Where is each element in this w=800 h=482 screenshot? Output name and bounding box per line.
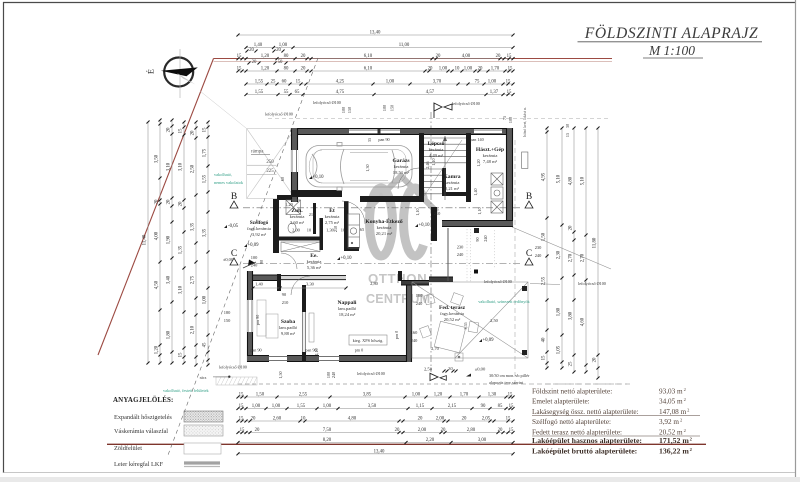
svg-text:30/30 cm mon. vb pillér: 30/30 cm mon. vb pillér <box>489 373 530 378</box>
svg-text:20: 20 <box>154 199 159 204</box>
svg-text:kerámia: kerámia <box>377 225 392 230</box>
svg-text:40: 40 <box>541 337 546 342</box>
svg-text:Konyha-Étkező: Konyha-Étkező <box>365 217 402 225</box>
svg-text:2: 2 <box>684 387 686 392</box>
svg-text:Nappali: Nappali <box>338 300 357 306</box>
svg-text:Garázs: Garázs <box>392 158 410 164</box>
svg-text:210: 210 <box>333 226 338 232</box>
svg-text:80: 80 <box>284 67 289 72</box>
svg-text:2,80: 2,80 <box>467 428 476 433</box>
svg-text:1,00: 1,00 <box>439 67 448 72</box>
svg-text:6,10: 6,10 <box>364 67 373 72</box>
svg-text:15: 15 <box>506 80 511 85</box>
svg-text:11,80: 11,80 <box>592 237 597 248</box>
svg-text:20: 20 <box>498 428 503 433</box>
svg-text:15: 15 <box>541 355 546 360</box>
svg-text:100: 100 <box>251 255 258 260</box>
svg-text:1,55: 1,55 <box>202 174 207 183</box>
svg-text:+0,10: +0,10 <box>418 223 430 228</box>
svg-text:2,55: 2,55 <box>541 276 546 285</box>
svg-text:15: 15 <box>237 67 242 72</box>
svg-text:20: 20 <box>255 428 260 433</box>
svg-text:lefolyócső Ø100: lefolyócső Ø100 <box>452 101 480 106</box>
svg-text:2,30: 2,30 <box>556 250 561 259</box>
svg-text:Ét: Ét <box>329 206 335 214</box>
svg-text:2,10: 2,10 <box>190 325 195 334</box>
svg-text:Földszint nettó alapterülete:: Földszint nettó alapterülete: <box>532 388 612 396</box>
svg-text:240: 240 <box>416 301 423 306</box>
svg-text:15: 15 <box>178 128 183 133</box>
svg-text:240: 240 <box>411 338 418 343</box>
svg-text:15: 15 <box>509 428 514 433</box>
svg-text:rámpa: rámpa <box>251 150 264 155</box>
svg-text:4,80: 4,80 <box>348 417 357 422</box>
svg-text:90: 90 <box>475 237 480 241</box>
svg-text:15: 15 <box>239 417 244 422</box>
svg-text:240: 240 <box>331 372 336 378</box>
svg-text:15: 15 <box>509 404 514 409</box>
svg-text:15: 15 <box>506 417 511 422</box>
svg-text:1,90: 1,90 <box>166 235 171 244</box>
svg-text:Emelet alapterülete:: Emelet alapterülete: <box>532 398 590 406</box>
svg-text:20: 20 <box>428 67 433 72</box>
svg-text:FÖLDSZINTI ALAPRAJZ: FÖLDSZINTI ALAPRAJZ <box>584 25 759 42</box>
svg-text:15: 15 <box>239 404 244 409</box>
svg-text:60: 60 <box>282 80 287 85</box>
svg-text:pan 90: pan 90 <box>378 137 389 142</box>
svg-text:kerámia: kerámia <box>394 164 409 169</box>
svg-text:15: 15 <box>240 428 245 433</box>
svg-text:Zuh.: Zuh. <box>291 208 303 214</box>
svg-text:3,35: 3,35 <box>202 228 207 237</box>
svg-text:20: 20 <box>301 54 306 59</box>
svg-text:lefolyócső Ø100: lefolyócső Ø100 <box>313 100 341 105</box>
svg-text:3,80: 3,80 <box>568 311 573 320</box>
svg-text:Lépcső: Lépcső <box>428 141 445 147</box>
svg-text:kieg. XPS hőszig.: kieg. XPS hőszig. <box>353 338 384 343</box>
svg-text:1,55: 1,55 <box>297 404 306 409</box>
svg-text:1,80: 1,80 <box>166 330 171 339</box>
svg-text:Váskerámia válaszfal: Váskerámia válaszfal <box>114 428 168 435</box>
svg-text:3,40: 3,40 <box>166 275 171 284</box>
svg-text:20: 20 <box>395 428 400 433</box>
svg-text:100: 100 <box>508 117 513 123</box>
svg-text:13,40: 13,40 <box>370 31 381 36</box>
svg-text:180: 180 <box>224 310 231 315</box>
svg-text:25: 25 <box>271 80 276 85</box>
svg-text:2,70: 2,70 <box>568 253 573 262</box>
svg-text:240: 240 <box>483 235 488 241</box>
svg-text:50: 50 <box>278 60 283 65</box>
svg-text:7,50: 7,50 <box>323 428 332 433</box>
svg-text:20: 20 <box>496 54 501 59</box>
svg-text:Leier kéregfal LKF: Leier kéregfal LKF <box>114 461 163 468</box>
svg-text:2: 2 <box>687 408 689 413</box>
svg-text:75: 75 <box>502 116 507 120</box>
svg-text:75: 75 <box>475 80 480 85</box>
svg-text:4,00: 4,00 <box>462 54 471 59</box>
svg-text:20: 20 <box>436 54 441 59</box>
svg-text:pm 0: pm 0 <box>394 331 399 340</box>
svg-text:100: 100 <box>341 107 346 113</box>
svg-text:Expandált hőszigetelés: Expandált hőszigetelés <box>114 414 172 421</box>
svg-text:2,50: 2,50 <box>190 164 195 173</box>
svg-text:4,60: 4,60 <box>580 317 585 326</box>
svg-text:20: 20 <box>178 201 183 206</box>
svg-text:8,20: 8,20 <box>323 438 332 443</box>
svg-text:4,75: 4,75 <box>336 90 345 95</box>
svg-text:1,70: 1,70 <box>460 393 469 398</box>
svg-text:1,00: 1,00 <box>323 404 332 409</box>
svg-text:lefolyócső Ø100: lefolyócső Ø100 <box>265 112 293 117</box>
svg-text:240: 240 <box>457 252 464 257</box>
svg-text:1,15: 1,15 <box>416 404 425 409</box>
svg-text:Szélfogó: Szélfogó <box>250 220 269 226</box>
svg-text:2: 2 <box>680 418 682 423</box>
svg-text:230: 230 <box>535 245 542 250</box>
svg-text:4,50: 4,50 <box>154 280 159 289</box>
svg-text:55: 55 <box>284 90 289 95</box>
svg-text:-0,05: -0,05 <box>228 224 239 229</box>
svg-text:2,75: 2,75 <box>190 275 195 284</box>
svg-text:15: 15 <box>508 67 513 72</box>
svg-text:1,00: 1,00 <box>464 67 473 72</box>
svg-text:kerámia: kerámia <box>290 214 305 219</box>
svg-text:15: 15 <box>202 127 207 132</box>
svg-text:1,20: 1,20 <box>434 393 443 398</box>
svg-text:2,60: 2,60 <box>273 417 282 422</box>
svg-text:13,40: 13,40 <box>374 449 385 454</box>
svg-text:25: 25 <box>568 361 573 366</box>
svg-text:65: 65 <box>295 90 300 95</box>
svg-text:1,55: 1,55 <box>255 80 264 85</box>
svg-text:kerámia: kerámia <box>429 147 444 152</box>
svg-text:3,50: 3,50 <box>368 404 377 409</box>
svg-text:90: 90 <box>259 260 264 264</box>
svg-text:15: 15 <box>565 133 570 137</box>
svg-text:1,55: 1,55 <box>255 90 264 95</box>
svg-text:210: 210 <box>434 211 441 216</box>
svg-text:+0,09: +0,09 <box>247 243 259 248</box>
svg-text:1,00: 1,00 <box>272 404 281 409</box>
svg-text:1,20: 1,20 <box>261 67 270 72</box>
svg-text:10: 10 <box>455 67 460 72</box>
svg-text:2,00: 2,00 <box>436 417 445 422</box>
svg-text:150: 150 <box>390 105 395 111</box>
svg-text:1,20: 1,20 <box>154 345 159 354</box>
svg-text:20: 20 <box>190 130 195 135</box>
svg-text:3,10: 3,10 <box>178 162 183 171</box>
svg-text:1,00: 1,00 <box>412 393 421 398</box>
svg-text:+0,10: +0,10 <box>340 256 352 261</box>
svg-text:lam.padló: lam.padló <box>338 306 357 311</box>
svg-text:3,50: 3,50 <box>154 154 159 163</box>
svg-text:ANYAGJELÖLÉS:: ANYAGJELÖLÉS: <box>113 396 174 404</box>
svg-text:1,20: 1,20 <box>261 54 270 59</box>
svg-text:fagy.kerámia: fagy.kerámia <box>440 311 464 316</box>
svg-text:2,05: 2,05 <box>482 417 491 422</box>
svg-text:225: 225 <box>266 169 274 174</box>
svg-text:150: 150 <box>224 318 231 323</box>
svg-text:6,10: 6,10 <box>364 54 373 59</box>
svg-text:20: 20 <box>478 67 483 72</box>
svg-text:15: 15 <box>508 393 513 398</box>
svg-text:15: 15 <box>296 80 301 85</box>
svg-text:45: 45 <box>202 342 207 347</box>
svg-text:230: 230 <box>457 245 464 250</box>
svg-text:210: 210 <box>282 300 289 305</box>
svg-text:fagy.kerámia: fagy.kerámia <box>247 226 271 231</box>
svg-text:+0,10: +0,10 <box>312 175 324 180</box>
svg-text:Lakóépület hasznos alapterület: Lakóépület hasznos alapterülete: <box>532 436 642 445</box>
svg-text:1,75: 1,75 <box>202 148 207 157</box>
svg-text:1,50: 1,50 <box>256 393 265 398</box>
svg-text:210: 210 <box>309 212 316 217</box>
svg-text:lefolyócső Ø100: lefolyócső Ø100 <box>357 371 385 376</box>
svg-text:20: 20 <box>276 48 281 53</box>
svg-text:2,00: 2,00 <box>418 428 427 433</box>
svg-text:1,35: 1,35 <box>178 245 183 254</box>
svg-text:11,40: 11,40 <box>142 234 147 245</box>
svg-text:Szoba: Szoba <box>281 319 296 325</box>
svg-text:15: 15 <box>507 90 512 95</box>
svg-text:85: 85 <box>498 404 503 409</box>
svg-text:Szélfogó nettó alapterülete:: Szélfogó nettó alapterülete: <box>532 418 611 426</box>
svg-text:147,08 m: 147,08 m <box>659 408 687 416</box>
svg-text:M 1:100: M 1:100 <box>648 43 695 58</box>
svg-text:Zöldfelület: Zöldfelület <box>114 445 142 452</box>
svg-text:20: 20 <box>441 428 446 433</box>
svg-text:2,70: 2,70 <box>580 253 585 262</box>
svg-text:kerámia: kerámia <box>325 214 340 219</box>
svg-text:240: 240 <box>251 263 258 268</box>
svg-text:20: 20 <box>251 417 256 422</box>
svg-text:Ee.: Ee. <box>310 253 318 259</box>
svg-text:1,00: 1,00 <box>488 80 497 85</box>
svg-text:4,00: 4,00 <box>154 231 159 240</box>
svg-text:pm 0: pm 0 <box>355 348 364 353</box>
svg-text:pan 90: pan 90 <box>250 348 261 353</box>
svg-text:3,85: 3,85 <box>363 393 372 398</box>
svg-text:136,22 m: 136,22 m <box>659 447 689 456</box>
svg-text:rács: rács <box>200 375 207 380</box>
svg-text:1,00: 1,00 <box>202 295 207 304</box>
svg-text:pm 90: pm 90 <box>255 315 260 326</box>
svg-text:160: 160 <box>411 330 418 335</box>
svg-text:93,03 m: 93,03 m <box>659 388 683 396</box>
svg-text:lam.padló: lam.padló <box>279 325 298 330</box>
svg-text:1,00: 1,00 <box>386 80 395 85</box>
svg-text:4,95: 4,95 <box>541 172 546 181</box>
svg-text:5,10: 5,10 <box>580 176 585 185</box>
svg-text:1,00: 1,00 <box>252 404 261 409</box>
svg-text:2,20: 2,20 <box>426 438 435 443</box>
svg-text:É: É <box>146 69 156 74</box>
svg-text:1,37: 1,37 <box>490 90 499 95</box>
svg-text:20: 20 <box>462 417 467 422</box>
svg-text:3,10: 3,10 <box>166 162 171 171</box>
svg-text:1,30: 1,30 <box>488 393 497 398</box>
svg-text:80: 80 <box>284 54 289 59</box>
svg-text:20: 20 <box>418 417 423 422</box>
svg-text:3,00: 3,00 <box>478 438 487 443</box>
svg-text:1,40: 1,40 <box>254 43 263 48</box>
svg-text:20: 20 <box>592 357 597 362</box>
svg-text:nemes vakolatok: nemes vakolatok <box>214 180 244 185</box>
svg-text:150: 150 <box>347 107 352 113</box>
svg-text:100: 100 <box>382 105 387 111</box>
svg-text:Lakóépület bruttó alapterülete: Lakóépület bruttó alapterülete: <box>532 447 637 456</box>
svg-text:20: 20 <box>249 48 254 53</box>
svg-text:lefolyócső Ø100: lefolyócső Ø100 <box>578 281 606 286</box>
svg-text:11,00: 11,00 <box>399 43 410 48</box>
svg-text:15: 15 <box>507 54 512 59</box>
svg-text:2: 2 <box>684 428 686 433</box>
svg-text:15: 15 <box>178 352 183 357</box>
svg-text:35: 35 <box>367 138 372 142</box>
svg-text:171,52 m: 171,52 m <box>659 436 689 445</box>
svg-text:60: 60 <box>280 177 285 181</box>
svg-text:kerámia: kerámia <box>307 259 322 264</box>
svg-text:20: 20 <box>568 225 573 230</box>
svg-text:1,70: 1,70 <box>491 67 500 72</box>
svg-text:2,55: 2,55 <box>299 393 308 398</box>
svg-text:3,10: 3,10 <box>178 285 183 294</box>
svg-text:20: 20 <box>301 67 306 72</box>
svg-text:15: 15 <box>237 54 242 59</box>
svg-text:1,50: 1,50 <box>541 232 546 241</box>
svg-text:Kamra: Kamra <box>443 174 460 180</box>
svg-text:+0,09: +0,09 <box>482 338 494 343</box>
svg-text:15: 15 <box>239 393 244 398</box>
svg-text:30: 30 <box>565 124 570 128</box>
svg-text:Lakásegység össz. nettó alapte: Lakásegység össz. nettó alapterülete: <box>532 408 639 416</box>
svg-text:4,57: 4,57 <box>426 90 435 95</box>
svg-text:90: 90 <box>481 404 486 409</box>
svg-text:180: 180 <box>416 293 423 298</box>
svg-text:240: 240 <box>535 253 542 258</box>
svg-text:Hászt.+Gép: Hászt.+Gép <box>476 147 504 153</box>
svg-text:250: 250 <box>266 160 274 165</box>
svg-text:20: 20 <box>166 127 171 132</box>
svg-text:1,80: 1,80 <box>556 307 561 316</box>
svg-text:4,80: 4,80 <box>568 176 573 185</box>
svg-text:2: 2 <box>684 397 686 402</box>
svg-text:lefolyócső Ø100: lefolyócső Ø100 <box>484 279 512 284</box>
svg-text:20: 20 <box>252 60 257 65</box>
svg-text:10: 10 <box>301 417 306 422</box>
svg-text:34,05 m: 34,05 m <box>659 398 683 406</box>
svg-text:3,70: 3,70 <box>433 80 442 85</box>
svg-text:1,05: 1,05 <box>556 345 561 354</box>
svg-text:pan 140: pan 140 <box>470 137 483 142</box>
svg-text:20: 20 <box>166 199 171 204</box>
svg-text:lefolyócső Ø100: lefolyócső Ø100 <box>219 365 247 370</box>
svg-text:4,25: 4,25 <box>336 80 345 85</box>
svg-text:Fed. terasz: Fed. terasz <box>439 305 466 311</box>
svg-text:3,35: 3,35 <box>190 222 195 231</box>
svg-text:5,10: 5,10 <box>556 174 561 183</box>
svg-text:kerámia: kerámia <box>445 180 460 185</box>
svg-text:3,92 m: 3,92 m <box>659 418 679 426</box>
svg-text:kerámia: kerámia <box>483 153 498 158</box>
svg-text:2,15: 2,15 <box>448 404 457 409</box>
